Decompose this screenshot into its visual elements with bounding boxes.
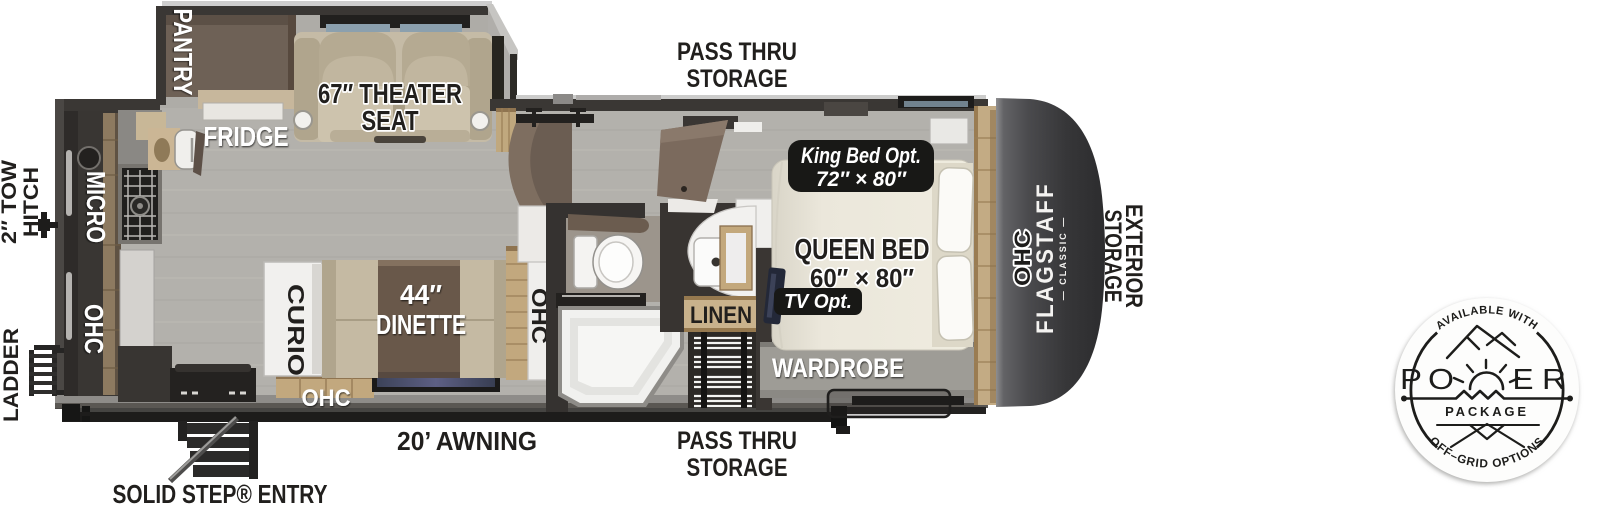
- svg-text:CURIO: CURIO: [283, 284, 309, 376]
- svg-text:PACKAGE: PACKAGE: [1445, 404, 1529, 419]
- svg-text:SEAT: SEAT: [362, 105, 419, 136]
- svg-text:LINEN: LINEN: [690, 302, 752, 329]
- svg-text:HITCH: HITCH: [20, 167, 43, 237]
- svg-text:King Bed Opt.: King Bed Opt.: [801, 143, 921, 168]
- svg-text:FLAGSTAFF: FLAGSTAFF: [1032, 182, 1059, 334]
- svg-text:PASS THRU: PASS THRU: [677, 38, 797, 66]
- svg-text:STORAGE: STORAGE: [687, 65, 788, 93]
- svg-text:SOLID STEP® ENTRY: SOLID STEP® ENTRY: [113, 479, 328, 505]
- svg-text:MICRO: MICRO: [81, 171, 111, 243]
- svg-text:DINETTE: DINETTE: [376, 309, 466, 340]
- svg-text:PANTRY: PANTRY: [168, 9, 198, 96]
- svg-text:O: O: [1428, 364, 1454, 396]
- svg-text:STORAGE: STORAGE: [1099, 210, 1126, 303]
- svg-text:OHC: OHC: [302, 385, 351, 412]
- svg-text:LADDER: LADDER: [0, 328, 23, 422]
- svg-text:P: P: [1400, 364, 1422, 396]
- svg-text:44″: 44″: [400, 279, 442, 310]
- svg-text:TV Opt.: TV Opt.: [784, 291, 852, 313]
- svg-text:QUEEN BED: QUEEN BED: [795, 234, 930, 266]
- svg-text:R: R: [1542, 364, 1566, 396]
- svg-text:FRIDGE: FRIDGE: [204, 121, 289, 152]
- svg-text:STORAGE: STORAGE: [687, 454, 788, 482]
- svg-text:WARDROBE: WARDROBE: [772, 353, 904, 383]
- svg-text:20’ AWNING: 20’ AWNING: [397, 426, 537, 456]
- svg-text:PASS THRU: PASS THRU: [677, 427, 797, 455]
- svg-text:— CLASSIC —: — CLASSIC —: [1058, 216, 1068, 301]
- svg-text:E: E: [1513, 364, 1534, 396]
- svg-text:2″ TOW: 2″ TOW: [0, 160, 21, 244]
- svg-text:OHC: OHC: [79, 304, 109, 354]
- svg-text:72″ × 80″: 72″ × 80″: [816, 168, 907, 191]
